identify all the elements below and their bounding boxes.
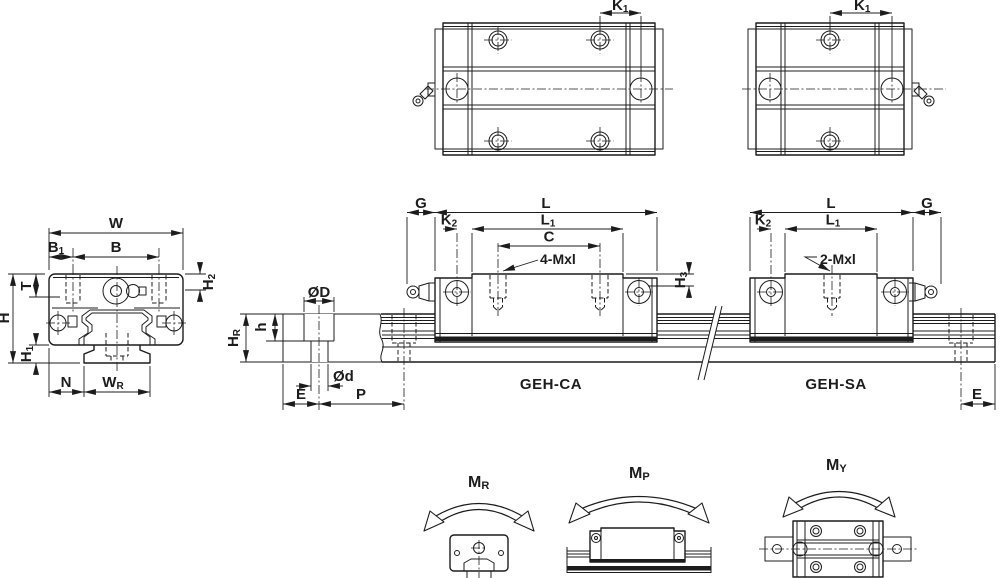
dim-label-l1-sa: L1 (826, 212, 841, 230)
dim-hr: HR (225, 314, 283, 362)
dim-label-c: C (544, 229, 555, 246)
dim-label-k1-ca: K1 (612, 0, 629, 15)
dim-label-h: H (0, 313, 13, 324)
dim-label-e-left: E (296, 386, 306, 403)
dim-k2-sa-sub: 2 (766, 219, 772, 230)
dim-b1-sub: 1 (59, 246, 65, 257)
carriage-end-view-icon (450, 535, 508, 578)
dim-label-h2: H2 (200, 273, 218, 290)
geh-ca-label: GEH-CA (520, 376, 582, 393)
dim-c: C (498, 229, 600, 247)
thread-label-ca: 4-Mxl (540, 251, 576, 267)
moment-arrow-icon (424, 504, 534, 532)
dim-label-e-right: E (972, 386, 982, 403)
dim-hr-main: H (225, 336, 242, 347)
dim-label-od-small: Ød (333, 368, 354, 385)
dim-label-h1: H1 (18, 345, 36, 362)
moment-label-mr: MR (468, 474, 489, 492)
dim-label-l1-ca: L1 (541, 212, 556, 230)
thread-label-sa: 2-Mxl (820, 251, 856, 267)
carriage-side-view-icon (567, 528, 711, 573)
my-sub: Y (839, 463, 847, 475)
dim-label-b: B (111, 239, 122, 256)
dim-label-b1: B1 (48, 239, 65, 257)
dim-l1-sa-main: L (826, 212, 835, 229)
dim-k1-sa: K1 (830, 0, 892, 76)
dim-g-sa: G (913, 195, 941, 284)
dim-l1-k2-ca: L1 K2 (441, 212, 623, 273)
dim-wr-sub: R (116, 381, 124, 392)
dim-h2: H2 (185, 263, 218, 301)
dim-label-t: T (18, 281, 35, 290)
dim-h1-main: H (18, 351, 35, 362)
moment-label-mp: MP (629, 465, 650, 483)
side-view-geh-ca: G L L1 K2 C 4-Mxl H3 GEH-CA (407, 195, 694, 393)
end-view: W B1 B T H H1 H2 N WR (0, 215, 218, 397)
thread-callout-ca: 4-Mxl (503, 251, 576, 271)
dim-label-k2-sa: K2 (755, 212, 772, 230)
moment-mr: MR (424, 474, 534, 578)
dim-label-od-big: ØD (308, 284, 331, 301)
dim-e-right: E (961, 364, 995, 410)
dim-h2-sub: 2 (207, 273, 218, 279)
thread-callout-sa: 2-Mxl (805, 251, 856, 271)
dim-label-k2-ca: K2 (441, 212, 458, 230)
dim-hr-sub: R (232, 328, 243, 336)
mp-main: M (629, 465, 642, 482)
dim-k1-sa-sub: 1 (865, 4, 871, 15)
mounting-holes-sa-top (816, 26, 844, 155)
dim-b1-b: B1 B (48, 239, 159, 266)
dim-t: T (8, 274, 60, 297)
moment-arrow-icon (783, 492, 895, 518)
dim-label-h-depth: h (253, 322, 270, 331)
dim-g-ca: G (407, 195, 435, 284)
dim-l1-sa-sub: 1 (835, 219, 841, 230)
dim-label-n: N (61, 374, 72, 391)
dim-label-p: P (356, 386, 366, 403)
dim-h3-main: H (672, 277, 689, 288)
dim-k1-ca-main: K (612, 0, 623, 14)
top-view-geh-sa: K1 (742, 0, 946, 155)
carriage-top-view-icon (759, 521, 917, 577)
dim-h-depth: h (240, 314, 304, 341)
dim-label-hr: HR (225, 328, 243, 347)
linear-guide-technical-drawing: K1 K1 (0, 0, 1000, 578)
dim-k1-ca-sub: 1 (623, 4, 629, 15)
dim-k2-sa-main: K (755, 212, 766, 229)
moment-label-my: MY (826, 457, 847, 475)
grease-nipple-icon (103, 278, 146, 304)
grease-nipple-icon (407, 283, 435, 301)
mounting-holes-ca-top (484, 26, 614, 155)
mr-main: M (468, 474, 481, 491)
moment-my: MY (759, 457, 917, 577)
dim-k2-ca-main: K (441, 212, 452, 229)
dim-label-l-ca: L (541, 195, 550, 212)
dim-label-g-sa: G (921, 195, 933, 212)
top-view-geh-ca: K1 (413, 0, 673, 155)
dim-l1-ca-main: L (541, 212, 550, 229)
dim-h2-main: H (200, 279, 217, 290)
dim-h3-sub: 3 (679, 271, 690, 277)
dim-label-l-sa: L (826, 195, 835, 212)
mr-sub: R (481, 480, 489, 492)
dim-label-g-ca: G (415, 195, 427, 212)
dim-n-wr: N WR (49, 348, 150, 397)
dim-b1-main: B (48, 239, 59, 256)
moment-mp: MP (567, 465, 711, 573)
my-main: M (826, 457, 839, 474)
geh-sa-label: GEH-SA (805, 376, 866, 393)
dim-label-w: W (109, 215, 124, 232)
dim-h1: H1 (18, 334, 49, 374)
grease-nipple-icon (413, 83, 435, 106)
grease-nipple-icon (912, 83, 934, 106)
drawing-svg: K1 K1 (0, 0, 1000, 578)
dim-h1-sub: 1 (25, 345, 36, 351)
dim-k2-ca-sub: 2 (452, 219, 458, 230)
dim-wr-main: W (102, 374, 117, 391)
moment-arrow-icon (569, 497, 709, 524)
side-view-geh-sa: L G L1 K2 2-Mxl GEH-SA (750, 195, 941, 393)
dim-k1-sa-main: K (854, 0, 865, 14)
dim-label-k1-sa: K1 (854, 0, 871, 15)
mp-sub: P (642, 471, 649, 483)
dim-label-wr: WR (102, 374, 124, 392)
